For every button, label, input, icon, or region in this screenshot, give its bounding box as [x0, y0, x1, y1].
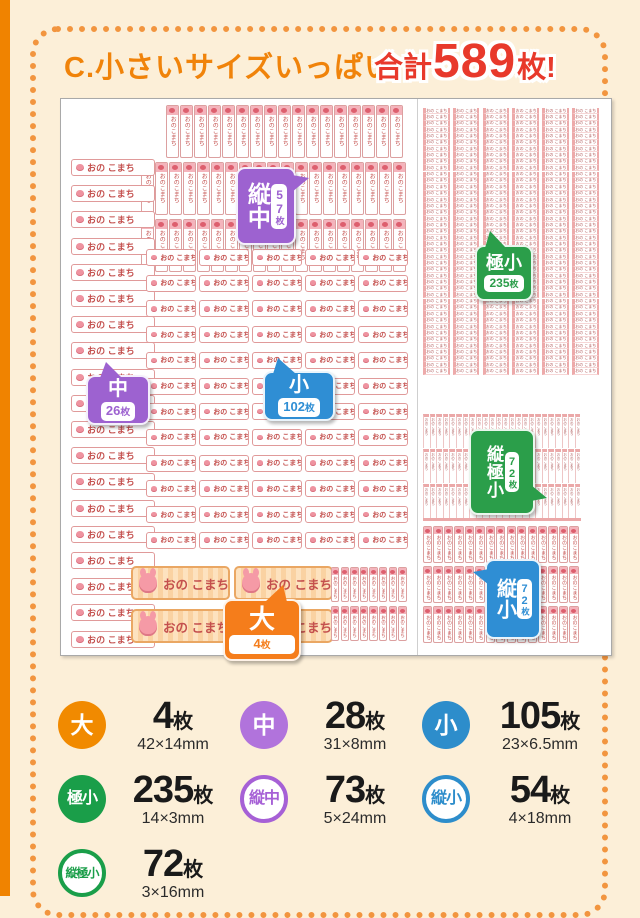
pig-icon	[76, 374, 84, 381]
sticker-name: おの こまち	[319, 535, 355, 545]
sticker-label: おの こまち	[483, 324, 510, 330]
sticker-label: おのこまち	[350, 567, 358, 602]
pig-icon	[76, 452, 84, 459]
sticker-label: おの こまち	[512, 152, 539, 158]
pig-icon	[204, 358, 210, 364]
label-header	[466, 567, 473, 574]
pig-icon	[363, 537, 369, 543]
sticker-label: おの こまち	[542, 368, 569, 374]
pig-icon	[551, 609, 556, 613]
sticker-name: おのこまち	[225, 116, 231, 146]
sticker-label: おの こまち	[71, 159, 155, 176]
sticker-name: おの こまち	[486, 217, 507, 221]
label-header	[279, 106, 290, 115]
sticker-label: おの こまち	[199, 300, 249, 317]
sticker-name: おの こまち	[319, 278, 355, 288]
sticker-label: おのこまち	[542, 449, 548, 483]
sticker-name: おのこまち	[214, 173, 220, 203]
sticker-name: おの こまち	[575, 363, 596, 367]
sticker-name: おの こまち	[319, 253, 355, 263]
sticker-group-goku-sho: おの こまちおの こまちおの こまちおの こまちおの こまちおの こまちおの こ…	[423, 108, 602, 375]
sticker-label: おの こまち	[542, 114, 569, 120]
legend-size-circle: 縦中	[240, 775, 288, 823]
sticker-name: おの こまち	[426, 325, 447, 329]
sticker-name: おの こまち	[87, 449, 135, 462]
sticker-label: おの こまち	[483, 356, 510, 362]
label-header	[549, 607, 556, 614]
pig-icon	[477, 529, 482, 533]
legend-unit: 枚	[173, 705, 193, 734]
label-header	[399, 568, 405, 575]
sticker-name: おの こまち	[456, 121, 477, 125]
sticker-name: おの こまち	[575, 280, 596, 284]
sticker-label: おの こまち	[542, 343, 569, 349]
badge-size-label: 中	[108, 379, 128, 399]
sticker-name: おのこまち	[446, 575, 451, 600]
sticker-label: おのこまち	[334, 105, 347, 158]
sticker-label: おの こまち	[483, 114, 510, 120]
pig-icon	[257, 537, 263, 543]
sticker-name: おのこまち	[371, 615, 376, 638]
sticker-name: おの こまち	[213, 535, 249, 545]
sticker-name: おの こまち	[575, 318, 596, 322]
sticker-label: おのこまち	[444, 606, 453, 643]
sticker-label: おのこまち	[348, 105, 361, 158]
pig-icon	[76, 478, 84, 485]
sticker-name: おの こまち	[456, 344, 477, 348]
pig-icon	[363, 383, 369, 389]
sticker-name: おの こまち	[545, 159, 566, 163]
sticker-label: おの こまち	[483, 178, 510, 184]
sticker-name: おの こまち	[545, 280, 566, 284]
sticker-name: おのこまち	[444, 488, 448, 506]
sticker-name: おの こまち	[319, 355, 355, 365]
sticker-label: おの こまち	[542, 133, 569, 139]
pig-icon	[211, 108, 217, 113]
pig-icon	[298, 222, 304, 227]
label-header	[370, 568, 376, 575]
pig-icon	[333, 570, 338, 574]
sticker-name: おの こまち	[160, 458, 196, 468]
sticker-name: おのこまち	[391, 576, 396, 599]
sticker-label: おの こまち	[71, 185, 155, 202]
pig-icon	[204, 435, 210, 441]
sticker-name: おのこまち	[537, 453, 541, 471]
sticker-name: おの こまち	[213, 432, 249, 442]
sticker-label: おの こまち	[146, 403, 196, 420]
pig-icon	[354, 222, 360, 227]
sticker-name: おのこまち	[543, 453, 547, 471]
sticker-label: おの こまち	[358, 300, 408, 317]
sticker-label: おの こまち	[358, 480, 408, 497]
label-header	[212, 220, 223, 229]
sticker-name: おの こまち	[545, 331, 566, 335]
legend-item-縦中: 縦中73枚5×24mm	[240, 766, 422, 832]
sticker-name: おの こまち	[426, 331, 447, 335]
sticker-name: おの こまち	[426, 242, 447, 246]
sticker-label: おの こまち	[542, 292, 569, 298]
badge-pointer	[485, 231, 506, 248]
sticker-name: おのこまち	[438, 488, 442, 506]
sticker-name: おの こまち	[426, 217, 447, 221]
label-header	[390, 568, 396, 575]
sticker-name: おの こまち	[372, 304, 408, 314]
sticker-label: おの こまち	[453, 305, 480, 311]
sticker-label: おの こまち	[542, 229, 569, 235]
sticker-label: おの こまち	[542, 197, 569, 203]
label-header	[434, 527, 441, 534]
pig-icon	[151, 460, 157, 466]
sticker-label: おのこまち	[454, 606, 463, 643]
sticker-label: おの こまち	[146, 429, 196, 446]
sticker-name: おの こまち	[456, 331, 477, 335]
sticker-name: おの こまち	[516, 128, 537, 132]
sticker-name: おの こまち	[426, 204, 447, 208]
sticker-name: おの こまち	[456, 109, 477, 113]
sticker-name: おのこまち	[458, 418, 462, 436]
pig-icon	[571, 569, 576, 573]
sticker-name: おの こまち	[319, 510, 355, 520]
sticker-label: おの こまち	[423, 165, 450, 171]
legend-count: 4	[153, 697, 173, 735]
sticker-name: おの こまち	[516, 121, 537, 125]
pig-icon	[342, 609, 347, 613]
sticker-label: おの こまち	[146, 480, 196, 497]
sticker-name: おのこまち	[351, 116, 357, 146]
sticker-name: おのこまち	[425, 418, 429, 436]
sticker-label: おの こまち	[512, 305, 539, 311]
label-header	[363, 106, 374, 115]
sticker-label: おのこまち	[465, 606, 474, 643]
legend-dimensions: 42×14mm	[137, 736, 209, 754]
sticker-label: おのこまち	[475, 606, 484, 643]
sticker-name: おの こまち	[516, 223, 537, 227]
label-header	[476, 607, 483, 614]
sticker-name: おのこまち	[561, 575, 566, 600]
sticker-name: おの こまち	[516, 198, 537, 202]
legend-values: 28枚31×8mm	[288, 697, 422, 754]
sticker-name: おの こまち	[575, 159, 596, 163]
sticker-label: おのこまち	[278, 105, 291, 158]
pig-icon	[172, 222, 178, 227]
sticker-name: おの こまち	[372, 381, 408, 391]
sticker-label: おのこまち	[569, 606, 578, 643]
sticker-name: おの こまち	[160, 253, 196, 263]
pig-icon	[400, 570, 405, 574]
sticker-name: おのこまち	[425, 535, 430, 560]
pig-icon	[390, 570, 395, 574]
sticker-name: おのこまち	[464, 453, 468, 471]
sticker-label: おの こまち	[542, 178, 569, 184]
sticker-label: おの こまち	[542, 356, 569, 362]
sticker-name: おの こまち	[486, 159, 507, 163]
pig-icon	[151, 255, 157, 261]
pig-icon	[169, 108, 175, 113]
pig-icon	[76, 400, 84, 407]
sticker-label: おのこまち	[555, 484, 561, 518]
sticker-label: おのこまち	[389, 606, 397, 641]
label-header	[167, 106, 178, 115]
sticker-name: おの こまち	[516, 236, 537, 240]
label-header	[487, 527, 494, 534]
total-prefix: 合計	[374, 44, 432, 86]
badge-size-label: 縦中	[245, 182, 268, 230]
sticker-name: おの こまち	[486, 312, 507, 316]
sticker-name: おの こまち	[213, 304, 249, 314]
sticker-name: おのこまち	[172, 173, 178, 203]
legend-item-縦極小: 縦極小72枚3×16mm	[58, 840, 240, 906]
pig-icon	[551, 569, 556, 573]
pig-icon	[204, 255, 210, 261]
sticker-name: おの こまち	[426, 178, 447, 182]
pig-icon	[425, 529, 430, 533]
sticker-name: おのこまち	[456, 615, 461, 640]
pig-icon	[76, 295, 84, 302]
sticker-name: おの こまち	[486, 331, 507, 335]
sticker-name: おの こまち	[545, 115, 566, 119]
sticker-name: おのこまち	[371, 576, 376, 599]
sticker-label: おの こまち	[199, 506, 249, 523]
sticker-label: おのこまち	[568, 449, 574, 483]
sticker-name: おの こまち	[372, 355, 408, 365]
legend-dimensions: 31×8mm	[324, 736, 387, 754]
sticker-name: おの こまち	[575, 255, 596, 259]
pig-icon	[530, 529, 535, 533]
sticker-name: おの こまち	[456, 140, 477, 144]
callout-badge-sho: 小102枚	[263, 371, 335, 421]
label-header	[265, 106, 276, 115]
sticker-label: おの こまち	[423, 254, 450, 260]
pig-icon	[363, 255, 369, 261]
sticker-name: おの こまち	[87, 266, 135, 279]
sticker-name: おの こまち	[575, 121, 596, 125]
sticker-name: おの こまち	[456, 293, 477, 297]
legend-count: 235	[133, 771, 193, 809]
label-header	[570, 607, 577, 614]
sticker-name: おのこまち	[576, 418, 580, 436]
sticker-name: おのこまち	[343, 615, 348, 638]
sticker-label: おのこまち	[180, 105, 193, 158]
sticker-name: おの こまち	[160, 278, 196, 288]
sticker-label: おのこまち	[331, 606, 339, 641]
sticker-name: おのこまち	[571, 575, 576, 600]
sticker-name: おの こまち	[266, 278, 302, 288]
pig-icon	[363, 280, 369, 286]
sticker-label: おのこまち	[389, 567, 397, 602]
sticker-label: おの こまち	[572, 324, 599, 330]
sticker-name: おの こまち	[575, 293, 596, 297]
sticker-label: おの こまち	[199, 429, 249, 446]
pig-icon	[253, 108, 259, 113]
sticker-label: おの こまち	[252, 455, 302, 472]
sticker-name: おの こまち	[456, 204, 477, 208]
sticker-name: おの こまち	[426, 191, 447, 195]
sticker-name: おの こまち	[160, 432, 196, 442]
sticker-name: おのこまち	[550, 488, 554, 506]
sticker-label: おのこまち	[393, 162, 406, 215]
sticker-label: おの こまち	[71, 500, 155, 517]
pig-icon	[368, 165, 374, 170]
sticker-label: おのこまち	[575, 449, 581, 483]
sticker-name: おの こまち	[426, 356, 447, 360]
label-header	[195, 106, 206, 115]
sticker-label: おの こまち	[305, 275, 355, 292]
sticker-name: おのこまち	[391, 615, 396, 638]
legend-item-中: 中28枚31×8mm	[240, 692, 422, 758]
sticker-name: おの こまち	[426, 121, 447, 125]
pig-icon	[310, 486, 316, 492]
sticker-name: おの こまち	[456, 356, 477, 360]
pig-icon	[204, 512, 210, 518]
sticker-label: おの こまち	[252, 480, 302, 497]
sticker-label: おの こまち	[71, 238, 155, 255]
sticker-name: おのこまち	[563, 418, 567, 436]
pig-icon	[371, 570, 376, 574]
sticker-name: おの こまち	[426, 185, 447, 189]
sticker-name: おの こまち	[426, 159, 447, 163]
sticker-label: おのこまち	[507, 526, 516, 563]
sticker-name: おのこまち	[456, 575, 461, 600]
pig-icon	[340, 165, 346, 170]
sticker-label: おのこまち	[306, 105, 319, 158]
label-header	[366, 220, 377, 229]
label-header	[508, 527, 515, 534]
legend-unit: 枚	[193, 779, 213, 808]
label-header	[391, 106, 402, 115]
sticker-label: おの こまち	[453, 127, 480, 133]
sticker-label: おの こまち	[146, 378, 196, 395]
sticker-name: おの こまち	[545, 236, 566, 240]
sticker-label: おのこまち	[360, 606, 368, 641]
sticker-name: おの こまち	[213, 510, 249, 520]
sticker-name: おの こまち	[516, 134, 537, 138]
sticker-name: おの こまち	[545, 267, 566, 271]
sticker-name: おの こまち	[516, 369, 537, 373]
sticker-name: おの こまち	[545, 337, 566, 341]
sticker-label: おの こまち	[572, 165, 599, 171]
sticker-name: おの こまち	[319, 330, 355, 340]
sticker-label: おの こまち	[483, 197, 510, 203]
sticker-name: おの こまち	[426, 280, 447, 284]
pig-icon	[351, 108, 357, 113]
label-header	[424, 607, 431, 614]
sticker-label: おのこまち	[575, 414, 581, 448]
sticker-name: おの こまち	[456, 166, 477, 170]
pig-icon	[379, 108, 385, 113]
pig-icon	[158, 222, 164, 227]
pig-icon	[310, 512, 316, 518]
sticker-name: おの こまち	[516, 185, 537, 189]
sticker-name: おの こまち	[426, 344, 447, 348]
sticker-label: おの こまち	[146, 352, 196, 369]
sticker-label: おの こまち	[572, 178, 599, 184]
sticker-label: おの こまち	[512, 191, 539, 197]
sticker-name: おの こまち	[545, 261, 566, 265]
sticker-label: おのこまち	[486, 526, 495, 563]
label-header	[366, 163, 377, 172]
sticker-name: おの こまち	[213, 253, 249, 263]
sticker-name: おの こまち	[575, 236, 596, 240]
legend-item-小: 小105枚23×6.5mm	[422, 692, 610, 758]
pig-icon	[354, 165, 360, 170]
sticker-label: おの こまち	[131, 566, 230, 600]
sticker-name: おのこまち	[183, 116, 189, 146]
pig-icon	[326, 222, 332, 227]
sticker-name: おのこまち	[211, 116, 217, 146]
sticker-label: おの こまち	[512, 343, 539, 349]
sticker-name: おの こまち	[426, 166, 447, 170]
sticker-name: おのこまち	[436, 535, 441, 560]
sticker-name: おの こまち	[486, 121, 507, 125]
sticker-label: おのこまち	[292, 105, 305, 158]
sticker-name: おの こまち	[426, 286, 447, 290]
label-header	[424, 567, 431, 574]
sticker-label: おのこまち	[362, 105, 375, 158]
sticker-name: おの こまち	[266, 535, 302, 545]
sticker-name: おの こまち	[426, 369, 447, 373]
pig-icon	[363, 486, 369, 492]
sticker-name: おの こまち	[486, 305, 507, 309]
sticker-label: おの こまち	[305, 249, 355, 266]
sticker-group-tate-chu-row1: おのこまちおのこまちおのこまちおのこまちおのこまちおのこまちおのこまちおのこまち…	[166, 105, 404, 160]
sticker-name: おの こまち	[486, 185, 507, 189]
sticker-label: おのこまち	[538, 526, 547, 563]
bunny-icon	[242, 573, 260, 593]
label-header	[445, 607, 452, 614]
sticker-name: おの こまち	[516, 115, 537, 119]
pig-icon	[393, 108, 399, 113]
sticker-name: おの こまち	[456, 286, 477, 290]
badge-pointer	[473, 569, 489, 585]
sticker-name: おの こまち	[456, 159, 477, 163]
label-header	[370, 607, 376, 614]
sticker-name: おの こまち	[213, 330, 249, 340]
sticker-name: おの こまち	[516, 312, 537, 316]
pig-icon	[310, 537, 316, 543]
sticker-label: おの こまち	[305, 455, 355, 472]
pig-icon	[204, 460, 210, 466]
legend-values: 235枚14×3mm	[106, 771, 240, 828]
pig-icon	[456, 609, 461, 613]
sticker-label: おの こまち	[199, 532, 249, 549]
sticker-label: おの こまち	[423, 127, 450, 133]
sticker-label: おのこまち	[456, 449, 462, 483]
sticker-label: おの こまち	[512, 133, 539, 139]
pig-icon	[310, 435, 316, 441]
sticker-name: おのこまち	[446, 615, 451, 640]
sticker-name: おの こまち	[486, 356, 507, 360]
sticker-name: おの こまち	[575, 350, 596, 354]
sticker-name: おの こまち	[456, 280, 477, 284]
legend-unit: 枚	[365, 779, 385, 808]
sticker-name: おの こまち	[575, 305, 596, 309]
sticker-name: おの こまち	[486, 134, 507, 138]
label-header	[351, 607, 357, 614]
badge-count: 26枚	[101, 402, 135, 421]
sticker-label: おの こまち	[572, 305, 599, 311]
pig-icon	[309, 108, 315, 113]
sticker-name: おの こまち	[456, 178, 477, 182]
sticker-name: おの こまち	[516, 229, 537, 233]
sticker-name: おの こまち	[426, 115, 447, 119]
sticker-name: おの こまち	[266, 484, 302, 494]
label-header	[198, 220, 209, 229]
sticker-name: おの こまち	[426, 350, 447, 354]
sticker-name: おのこまち	[451, 453, 455, 471]
sticker-label: おの こまち	[423, 368, 450, 374]
sticker-name: おの こまち	[319, 484, 355, 494]
sticker-name: おのこまち	[267, 116, 273, 146]
